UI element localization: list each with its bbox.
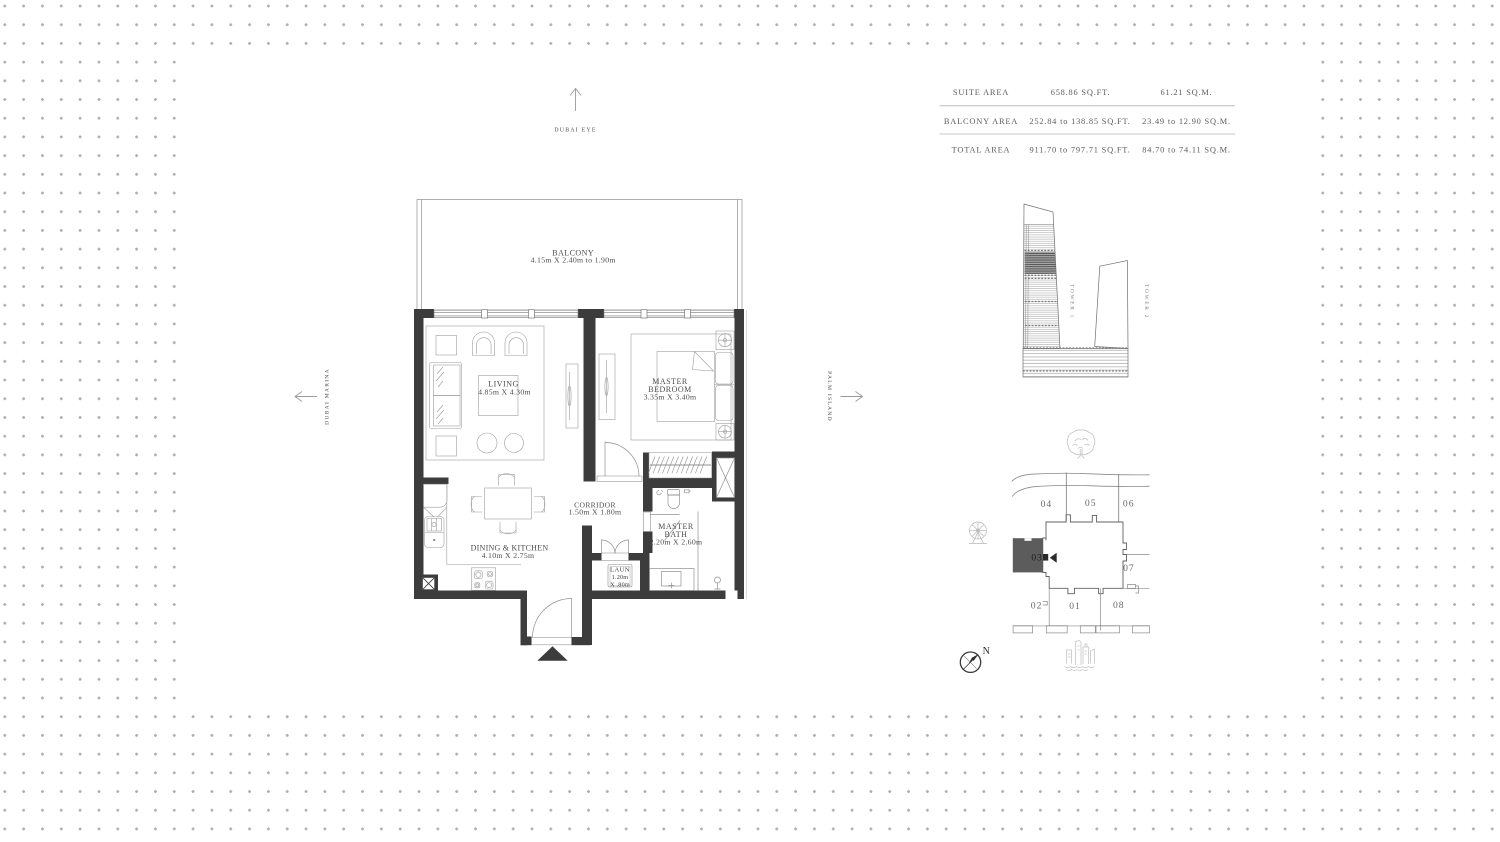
svg-text:3.35m X 3.40m: 3.35m X 3.40m <box>644 393 697 402</box>
svg-text:SUITE AREA: SUITE AREA <box>953 88 1009 97</box>
svg-text:PALM ISLAND: PALM ISLAND <box>826 371 832 422</box>
svg-text:08: 08 <box>1113 600 1125 611</box>
svg-text:2.20m X 2.60m: 2.20m X 2.60m <box>650 538 703 547</box>
svg-text:02: 02 <box>1031 601 1043 612</box>
svg-text:LAUN: LAUN <box>610 567 630 574</box>
svg-text:23.49 to 12.90 SQ.M.: 23.49 to 12.90 SQ.M. <box>1142 117 1231 126</box>
svg-text:DUBAI EYE: DUBAI EYE <box>554 128 596 134</box>
svg-text:04: 04 <box>1041 499 1053 510</box>
svg-text:N: N <box>983 646 990 657</box>
svg-text:07: 07 <box>1123 563 1135 574</box>
svg-text:03: 03 <box>1031 553 1042 564</box>
svg-text:1.50m X 1.80m: 1.50m X 1.80m <box>569 508 622 517</box>
svg-text:4.85m X 4.30m: 4.85m X 4.30m <box>478 387 531 396</box>
svg-text:4.15m X 2.40m to 1.90m: 4.15m X 2.40m to 1.90m <box>531 256 616 265</box>
svg-text:4.10m X 2.75m: 4.10m X 2.75m <box>482 551 535 560</box>
svg-text:658.86 SQ.FT.: 658.86 SQ.FT. <box>1051 88 1111 97</box>
svg-text:TOTAL AREA: TOTAL AREA <box>952 146 1011 155</box>
svg-text:911.70 to 797.71 SQ.FT.: 911.70 to 797.71 SQ.FT. <box>1030 146 1131 155</box>
svg-text:DUBAI MARINA: DUBAI MARINA <box>325 368 331 425</box>
svg-text:05: 05 <box>1085 498 1097 509</box>
svg-text:BALCONY AREA: BALCONY AREA <box>944 117 1018 126</box>
svg-text:TOWER 1: TOWER 1 <box>1069 284 1075 319</box>
svg-text:84.70 to 74.11 SQ.M.: 84.70 to 74.11 SQ.M. <box>1142 146 1231 155</box>
svg-text:1.20m: 1.20m <box>612 574 629 581</box>
svg-text:252.84 to 138.85 SQ.FT.: 252.84 to 138.85 SQ.FT. <box>1029 117 1130 126</box>
svg-text:01: 01 <box>1069 601 1081 612</box>
svg-text:X .80m: X .80m <box>610 581 630 588</box>
svg-text:61.21 SQ.M.: 61.21 SQ.M. <box>1160 88 1212 97</box>
svg-text:06: 06 <box>1123 499 1135 510</box>
svg-text:TOWER 2: TOWER 2 <box>1143 284 1149 319</box>
